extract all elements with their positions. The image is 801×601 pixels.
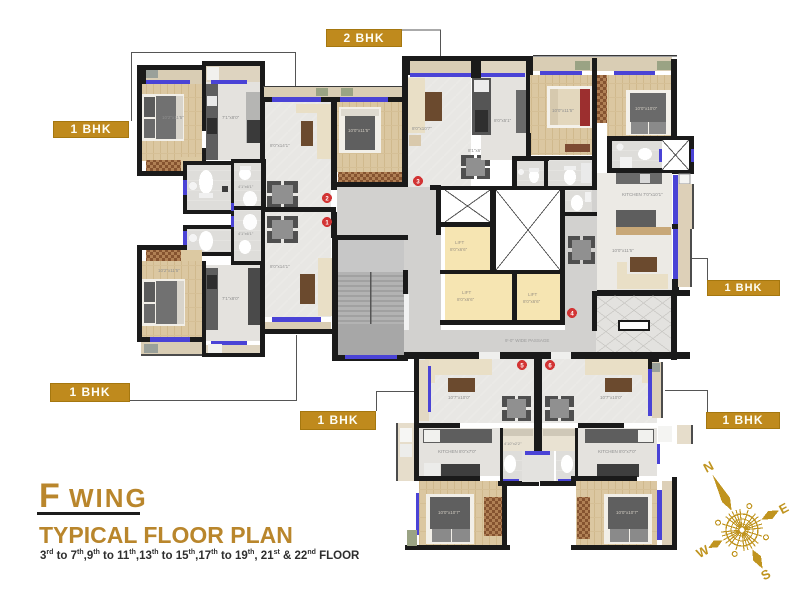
svg-text:4'10"x2'2": 4'10"x2'2" [504, 441, 522, 446]
svg-text:7'1"x8'0": 7'1"x8'0" [222, 115, 240, 120]
svg-text:10'0"x10'7": 10'0"x10'7" [438, 510, 461, 515]
svg-text:S: S [758, 566, 773, 583]
svg-text:8'0"x6'6": 8'0"x6'6" [523, 299, 541, 304]
svg-text:N: N [701, 458, 716, 476]
svg-text:8'0"x10'7": 8'0"x10'7" [412, 126, 432, 131]
svg-text:10'0"x10'7": 10'0"x10'7" [616, 510, 639, 515]
svg-text:8'0"x14'1": 8'0"x14'1" [270, 143, 290, 148]
svg-text:8'0"x6'6": 8'0"x6'6" [450, 247, 468, 252]
svg-text:KITCHEN 8'0"x7'0": KITCHEN 8'0"x7'0" [438, 449, 477, 454]
svg-text:LIFT: LIFT [455, 240, 465, 245]
svg-text:4'1"x6'1": 4'1"x6'1" [238, 231, 254, 236]
svg-text:8'0"x5'1": 8'0"x5'1" [494, 118, 512, 123]
svg-text:9'-0" WIDE PASSAGE: 9'-0" WIDE PASSAGE [505, 338, 549, 343]
svg-text:10'0"x11'5": 10'0"x11'5" [552, 108, 574, 113]
svg-text:10'7"x10'0": 10'7"x10'0" [600, 395, 623, 400]
svg-text:4'1"x6'1": 4'1"x6'1" [238, 184, 254, 189]
svg-text:10'0"x11'5": 10'0"x11'5" [348, 128, 370, 133]
svg-text:10'0"x10'0": 10'0"x10'0" [635, 106, 658, 111]
svg-text:8'0"x14'1": 8'0"x14'1" [270, 264, 290, 269]
svg-text:10'0"x11'5": 10'0"x11'5" [612, 248, 634, 253]
svg-text:KITCHEN 7'0"x10'1": KITCHEN 7'0"x10'1" [622, 192, 663, 197]
svg-text:8'0"x6'6": 8'0"x6'6" [457, 297, 475, 302]
svg-text:W: W [694, 542, 713, 561]
svg-text:E: E [776, 500, 791, 517]
svg-text:LIFT: LIFT [528, 292, 538, 297]
svg-text:10'2"x11'5": 10'2"x11'5" [162, 115, 184, 120]
svg-text:7'1"x8'0": 7'1"x8'0" [222, 296, 240, 301]
svg-text:10'7"x10'0": 10'7"x10'0" [448, 395, 471, 400]
svg-text:LIFT: LIFT [462, 290, 472, 295]
svg-text:KITCHEN 8'0"x7'0": KITCHEN 8'0"x7'0" [598, 449, 637, 454]
svg-text:10'2"x11'5": 10'2"x11'5" [158, 268, 180, 273]
